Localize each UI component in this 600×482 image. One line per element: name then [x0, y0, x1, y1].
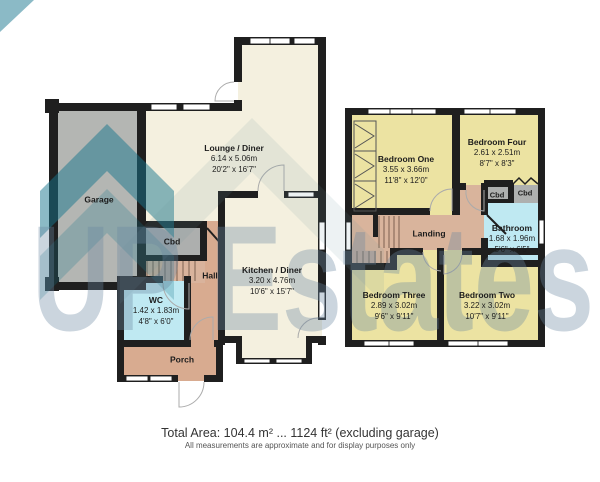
room-label-kitchen: Kitchen / Diner 3.20 x 4.76m 10'6" x 15'…: [242, 265, 302, 297]
room-label-cbd-right: Cbd: [518, 189, 533, 198]
room-label-bedroom-two: Bedroom Two 3.22 x 3.02m 10'7" x 9'11": [459, 290, 515, 322]
ground-floor-plan: [45, 37, 326, 407]
room-label-landing: Landing: [412, 229, 445, 240]
room-label-porch: Porch: [170, 355, 194, 366]
total-area-text: Total Area: 104.4 m² ... 1124 ft² (exclu…: [0, 426, 600, 440]
room-label-wc: WC 1.42 x 1.83m 4'8" x 6'0": [133, 295, 179, 327]
floorplan-page: Garage Lounge / Diner 6.14 x 5.06m 20'2"…: [0, 0, 600, 482]
disclaimer-text: All measurements are approximate and for…: [0, 441, 600, 450]
room-label-garage: Garage: [84, 195, 113, 206]
room-label-bedroom-three: Bedroom Three 2.89 x 3.02m 9'6" x 9'11": [363, 290, 426, 322]
room-label-cbd-left: Cbd: [490, 191, 505, 200]
stair-newel-wall: [373, 215, 378, 237]
room-label-lounge: Lounge / Diner 6.14 x 5.06m 20'2" x 16'7…: [204, 143, 264, 175]
room-label-bedroom-four: Bedroom Four 2.61 x 2.51m 8'7" x 8'3": [468, 137, 527, 169]
room-label-bathroom: Bathroom 1.68 x 1.96m 5'6" x 6'5": [489, 223, 535, 255]
room-label-hall: Hall: [202, 271, 218, 282]
room-label-cbd-gf: Cbd: [164, 237, 181, 248]
room-label-bedroom-one: Bedroom One 3.55 x 3.66m 11'8" x 12'0": [378, 154, 434, 186]
